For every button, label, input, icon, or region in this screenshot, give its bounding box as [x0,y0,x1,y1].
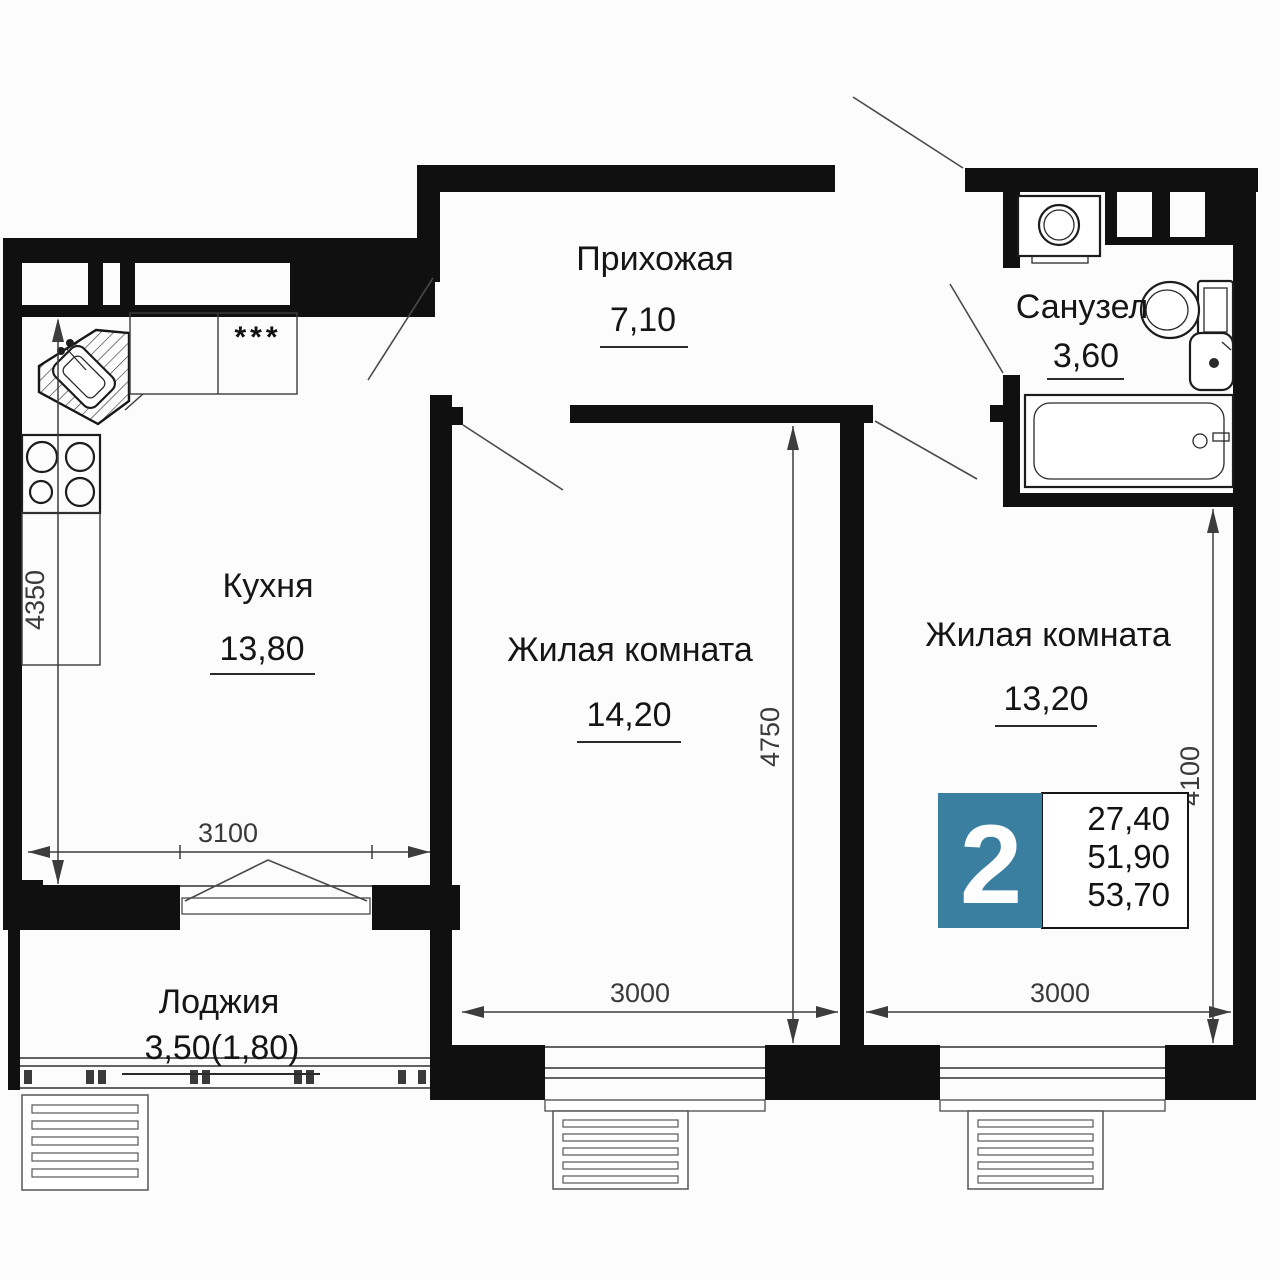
svg-text:Санузел: Санузел [1016,288,1148,326]
svg-text:3,50(1,80): 3,50(1,80) [145,1029,300,1067]
svg-text:7,10: 7,10 [610,301,676,339]
svg-text:4750: 4750 [755,707,785,767]
svg-text:3,60: 3,60 [1053,337,1119,375]
svg-text:Жилая комната: Жилая комната [507,631,753,669]
dimension-kitchen-depth: 4350 [20,318,64,884]
badge-area-without-loggia: 51,90 [1087,838,1170,875]
svg-text:Жилая комната: Жилая комната [925,616,1171,654]
svg-text:14,20: 14,20 [586,696,671,734]
balcony-door [180,860,372,914]
appliance-symbol: *** [234,321,281,354]
badge-rooms-count: 2 [960,802,1022,927]
doors [368,97,1003,490]
dimension-living-room-1-depth: 4750 [755,426,799,1043]
washing-machine [1018,196,1100,263]
label-living-room-2: Жилая комната 13,20 [925,616,1171,726]
badge-total-area: 53,70 [1087,876,1170,913]
svg-text:3100: 3100 [198,818,258,848]
entrance-door-leaf [853,97,963,168]
room-2-door-leaf [875,421,977,479]
apartment-info-badge: 2 27,40 51,90 53,70 [938,793,1188,928]
dimension-living-room-1-width: 3000 [462,978,838,1018]
dimension-living-room-2-width: 3000 [866,978,1231,1018]
floor-plan-drawing: *** 4350 3100 [0,0,1280,1280]
ac-basket-room-1 [553,1111,688,1189]
label-living-room-1: Жилая комната 14,20 [507,631,753,742]
room-1-door-leaf [463,425,563,490]
corner-sink [39,330,129,424]
label-hallway: Прихожая 7,10 [576,240,734,347]
ac-basket-loggia [22,1095,148,1190]
window-room-1 [545,1047,765,1111]
svg-text:Лоджия: Лоджия [159,983,279,1021]
svg-text:3000: 3000 [610,978,670,1008]
bathtub [1025,395,1233,487]
toilet [1141,281,1233,339]
badge-living-area: 27,40 [1087,800,1170,837]
label-bathroom: Санузел 3,60 [1016,288,1148,379]
label-kitchen: Кухня 13,80 [210,567,315,674]
svg-text:Прихожая: Прихожая [576,240,734,278]
dimension-kitchen-width: 3100 [28,818,430,859]
window-room-2 [940,1047,1165,1111]
svg-text:Кухня: Кухня [223,567,314,605]
svg-text:13,20: 13,20 [1003,680,1088,718]
bathroom-door-leaf [950,284,1003,373]
floor-plan-page: *** 4350 3100 [0,0,1280,1280]
svg-text:13,80: 13,80 [219,630,304,668]
svg-text:4350: 4350 [20,570,50,630]
dimension-living-room-2-depth: 4100 [1175,509,1219,1043]
stove [22,435,100,513]
svg-text:3000: 3000 [1030,978,1090,1008]
label-loggia: Лоджия 3,50(1,80) [122,983,320,1074]
ac-basket-room-2 [968,1111,1103,1189]
bathroom-sink [1190,333,1233,390]
